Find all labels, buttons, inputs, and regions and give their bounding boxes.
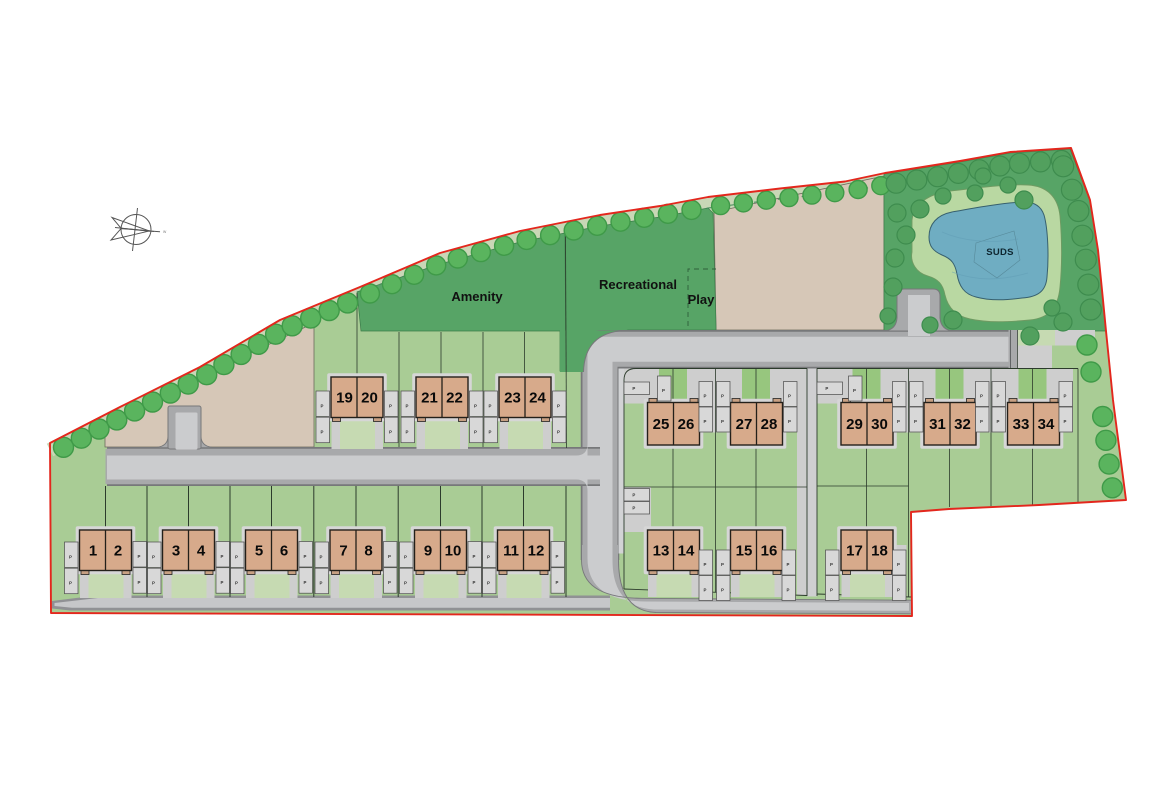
svg-text:P: P xyxy=(557,403,560,408)
svg-text:8: 8 xyxy=(364,542,372,559)
svg-text:13: 13 xyxy=(653,542,670,559)
svg-text:P: P xyxy=(220,580,223,585)
svg-text:23: 23 xyxy=(504,389,521,406)
svg-text:P: P xyxy=(557,430,560,435)
svg-text:P: P xyxy=(487,554,490,559)
svg-text:20: 20 xyxy=(361,389,378,406)
svg-text:P: P xyxy=(389,403,392,408)
svg-text:P: P xyxy=(152,554,155,559)
svg-text:22: 22 xyxy=(446,389,463,406)
svg-text:P: P xyxy=(235,581,238,586)
svg-text:P: P xyxy=(788,394,791,399)
svg-text:P: P xyxy=(474,403,477,408)
svg-text:Amenity: Amenity xyxy=(451,289,503,304)
svg-text:P: P xyxy=(996,419,999,424)
svg-text:P: P xyxy=(825,386,828,391)
svg-text:P: P xyxy=(404,554,407,559)
svg-text:P: P xyxy=(721,394,724,399)
svg-text:29: 29 xyxy=(846,416,863,433)
svg-text:17: 17 xyxy=(846,542,863,559)
svg-text:P: P xyxy=(897,588,900,593)
svg-text:P: P xyxy=(555,580,558,585)
svg-text:P: P xyxy=(220,554,223,559)
svg-text:P: P xyxy=(555,554,558,559)
svg-text:P: P xyxy=(388,554,391,559)
svg-text:P: P xyxy=(703,562,706,567)
svg-text:16: 16 xyxy=(761,542,778,559)
svg-text:P: P xyxy=(1063,394,1066,399)
svg-text:P: P xyxy=(69,581,72,586)
svg-text:P: P xyxy=(472,554,475,559)
svg-text:P: P xyxy=(320,403,323,408)
svg-text:2: 2 xyxy=(114,542,122,559)
svg-text:32: 32 xyxy=(954,416,971,433)
svg-text:P: P xyxy=(69,554,72,559)
svg-text:P: P xyxy=(319,581,322,586)
svg-text:24: 24 xyxy=(529,389,546,406)
svg-text:P: P xyxy=(721,562,724,567)
svg-text:P: P xyxy=(788,419,791,424)
svg-text:9: 9 xyxy=(424,542,432,559)
svg-text:P: P xyxy=(303,554,306,559)
svg-text:P: P xyxy=(853,388,856,393)
svg-text:P: P xyxy=(721,588,724,593)
svg-text:Play: Play xyxy=(688,292,716,307)
svg-text:3: 3 xyxy=(172,542,180,559)
svg-text:P: P xyxy=(472,580,475,585)
svg-text:P: P xyxy=(632,506,635,511)
svg-text:P: P xyxy=(996,394,999,399)
svg-text:P: P xyxy=(487,581,490,586)
svg-text:P: P xyxy=(405,430,408,435)
svg-text:21: 21 xyxy=(421,389,438,406)
svg-text:P: P xyxy=(137,554,140,559)
svg-text:P: P xyxy=(488,430,491,435)
svg-text:26: 26 xyxy=(678,416,695,433)
svg-text:P: P xyxy=(404,581,407,586)
svg-text:34: 34 xyxy=(1038,416,1055,433)
svg-text:P: P xyxy=(897,419,900,424)
svg-text:31: 31 xyxy=(929,416,946,433)
svg-text:30: 30 xyxy=(871,416,888,433)
svg-text:P: P xyxy=(721,419,724,424)
svg-text:P: P xyxy=(830,562,833,567)
svg-text:P: P xyxy=(320,430,323,435)
svg-text:5: 5 xyxy=(255,542,263,559)
svg-text:25: 25 xyxy=(653,416,670,433)
svg-text:18: 18 xyxy=(871,542,888,559)
svg-text:10: 10 xyxy=(445,542,462,559)
svg-text:w: w xyxy=(163,229,167,234)
svg-text:P: P xyxy=(703,588,706,593)
svg-text:P: P xyxy=(980,394,983,399)
svg-text:19: 19 xyxy=(336,389,353,406)
svg-text:P: P xyxy=(786,562,789,567)
svg-text:P: P xyxy=(914,394,917,399)
svg-text:P: P xyxy=(980,419,983,424)
svg-text:1: 1 xyxy=(89,542,97,559)
svg-text:P: P xyxy=(389,430,392,435)
svg-text:7: 7 xyxy=(339,542,347,559)
svg-text:15: 15 xyxy=(736,542,753,559)
svg-text:P: P xyxy=(405,403,408,408)
svg-text:12: 12 xyxy=(528,542,545,559)
svg-text:P: P xyxy=(830,588,833,593)
svg-text:P: P xyxy=(137,580,140,585)
svg-text:P: P xyxy=(235,554,238,559)
svg-text:P: P xyxy=(703,394,706,399)
svg-text:P: P xyxy=(488,403,491,408)
svg-text:P: P xyxy=(632,493,635,498)
svg-text:27: 27 xyxy=(736,416,753,433)
svg-text:P: P xyxy=(914,419,917,424)
svg-text:P: P xyxy=(897,394,900,399)
svg-text:14: 14 xyxy=(678,542,695,559)
svg-text:P: P xyxy=(897,562,900,567)
svg-text:P: P xyxy=(152,581,155,586)
svg-text:P: P xyxy=(1063,419,1066,424)
svg-text:11: 11 xyxy=(503,542,519,559)
svg-text:P: P xyxy=(303,580,306,585)
svg-text:6: 6 xyxy=(280,542,288,559)
svg-text:P: P xyxy=(388,580,391,585)
svg-text:Recreational: Recreational xyxy=(599,277,677,292)
svg-text:P: P xyxy=(662,388,665,393)
svg-text:P: P xyxy=(786,588,789,593)
svg-text:P: P xyxy=(474,430,477,435)
svg-text:4: 4 xyxy=(197,542,206,559)
svg-text:P: P xyxy=(319,554,322,559)
svg-text:P: P xyxy=(703,419,706,424)
svg-text:28: 28 xyxy=(761,416,778,433)
svg-text:33: 33 xyxy=(1013,416,1030,433)
svg-text:P: P xyxy=(632,386,635,391)
svg-text:SUDS: SUDS xyxy=(986,247,1014,258)
